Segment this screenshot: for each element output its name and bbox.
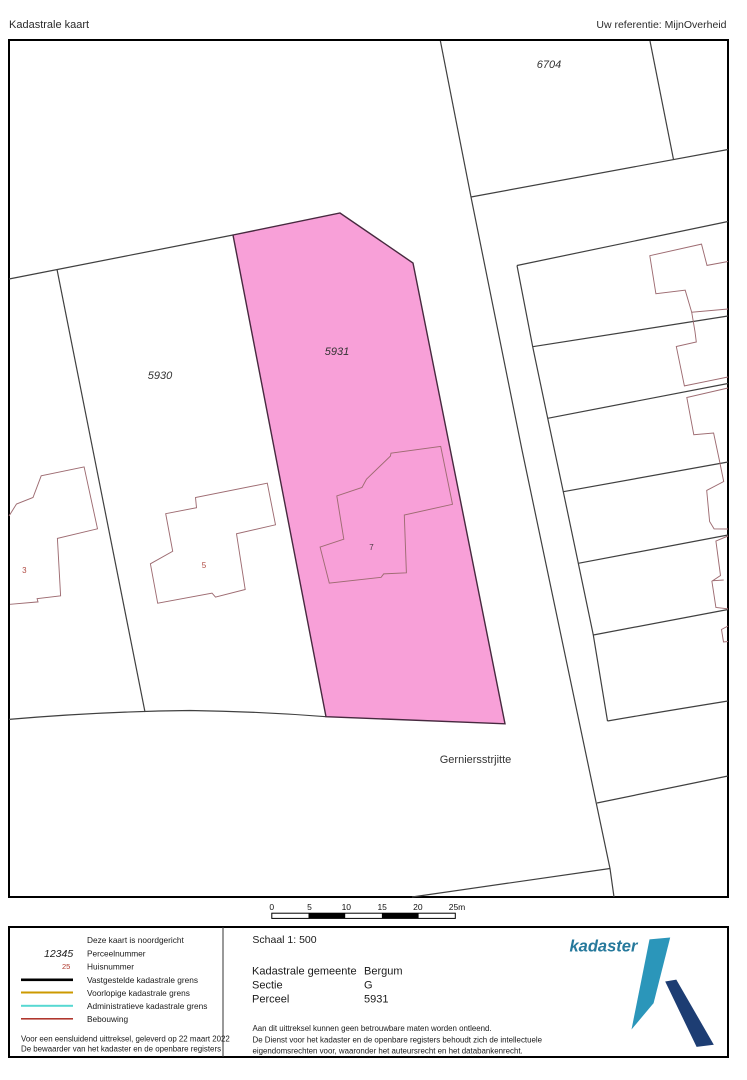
svg-text:Perceelnummer: Perceelnummer bbox=[87, 949, 146, 959]
svg-text:Bergum: Bergum bbox=[364, 966, 403, 978]
svg-text:De Dienst voor het kadaster en: De Dienst voor het kadaster en de openba… bbox=[253, 1036, 543, 1045]
svg-text:Administratieve kadastrale gre: Administratieve kadastrale grens bbox=[87, 1001, 207, 1011]
svg-text:25m: 25m bbox=[449, 902, 466, 912]
svg-text:Voorlopige kadastrale grens: Voorlopige kadastrale grens bbox=[87, 988, 190, 998]
svg-text:Huisnummer: Huisnummer bbox=[87, 962, 134, 972]
svg-text:Gerniersstrjitte: Gerniersstrjitte bbox=[440, 754, 512, 766]
svg-text:12345: 12345 bbox=[44, 948, 73, 960]
svg-text:Kadastrale kaart: Kadastrale kaart bbox=[9, 19, 89, 31]
svg-text:Voor een eensluidend uittrekse: Voor een eensluidend uittreksel, gelever… bbox=[21, 1035, 230, 1044]
svg-text:5: 5 bbox=[202, 561, 207, 570]
svg-text:Schaal 1: 500: Schaal 1: 500 bbox=[252, 934, 316, 946]
svg-text:Uw referentie: MijnOverheid: Uw referentie: MijnOverheid bbox=[596, 19, 726, 31]
svg-text:De bewaarder van het kadaster: De bewaarder van het kadaster en de open… bbox=[21, 1045, 221, 1054]
svg-text:kadaster: kadaster bbox=[570, 938, 639, 956]
svg-text:5931: 5931 bbox=[325, 346, 349, 358]
svg-text:25: 25 bbox=[62, 962, 70, 971]
svg-text:20: 20 bbox=[413, 902, 423, 912]
svg-text:5930: 5930 bbox=[148, 370, 173, 382]
svg-text:Bebouwing: Bebouwing bbox=[87, 1014, 128, 1024]
svg-text:Sectie: Sectie bbox=[252, 980, 283, 992]
svg-text:7: 7 bbox=[369, 543, 374, 552]
svg-text:eigendomsrechten voor, waarond: eigendomsrechten voor, waaronder het aut… bbox=[253, 1047, 523, 1056]
svg-text:Kadastrale gemeente: Kadastrale gemeente bbox=[252, 966, 357, 978]
svg-text:3: 3 bbox=[22, 566, 27, 575]
svg-text:Perceel: Perceel bbox=[252, 994, 289, 1006]
svg-text:G: G bbox=[364, 980, 373, 992]
svg-text:Vastgestelde kadastrale grens: Vastgestelde kadastrale grens bbox=[87, 975, 198, 985]
svg-text:15: 15 bbox=[377, 902, 387, 912]
svg-text:Deze kaart is noordgericht: Deze kaart is noordgericht bbox=[87, 935, 185, 945]
svg-text:5931: 5931 bbox=[364, 994, 388, 1006]
svg-text:6704: 6704 bbox=[537, 59, 561, 71]
svg-text:0: 0 bbox=[269, 902, 274, 912]
svg-text:Aan dit uittreksel kunnen geen: Aan dit uittreksel kunnen geen betrouwba… bbox=[253, 1024, 492, 1033]
svg-text:5: 5 bbox=[307, 902, 312, 912]
svg-text:10: 10 bbox=[342, 902, 352, 912]
